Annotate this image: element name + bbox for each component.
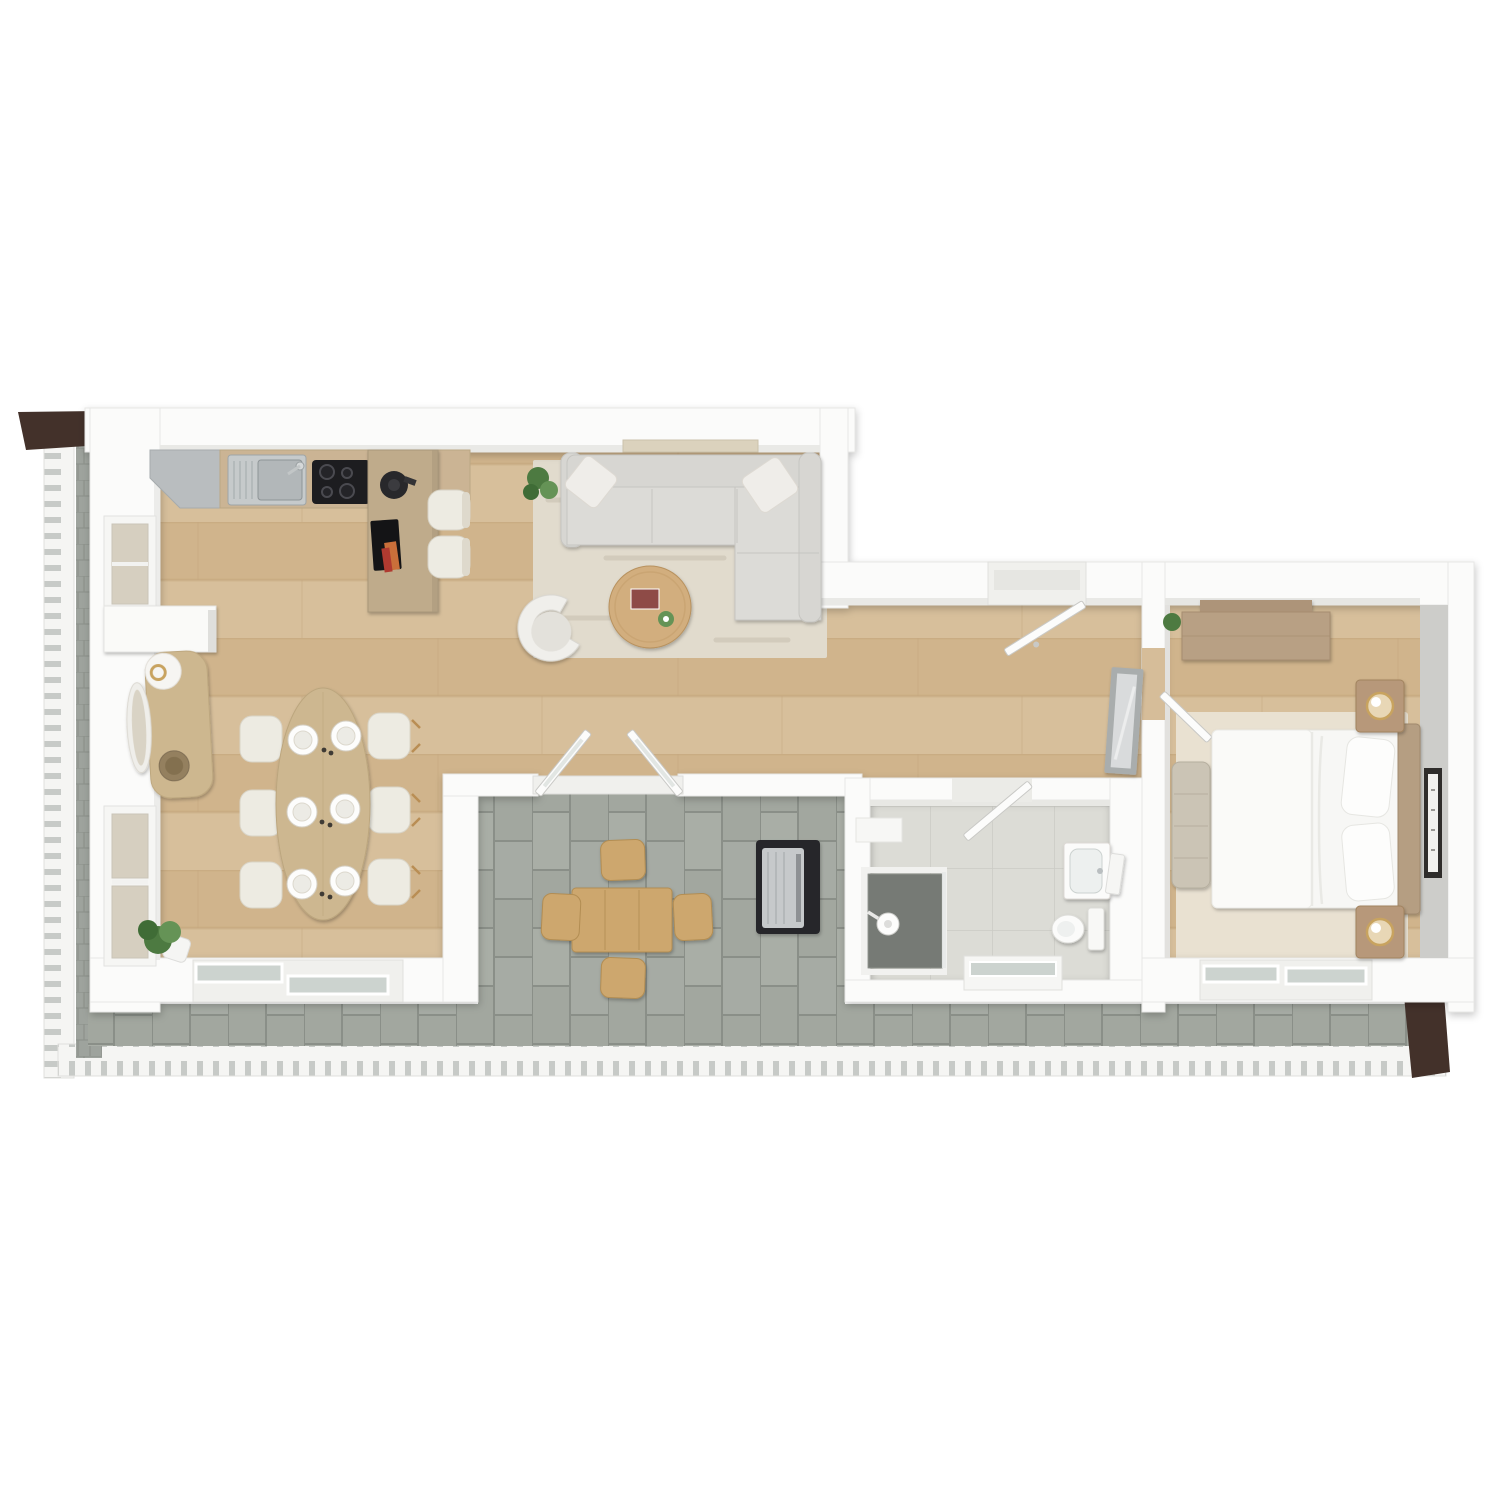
bedroom-doorway <box>1142 648 1165 720</box>
floor-plan-svg <box>0 0 1500 1500</box>
outdoor-chair-left <box>541 893 581 941</box>
dining-chair <box>368 787 410 833</box>
entry-threshold <box>994 570 1080 590</box>
privacy-panel <box>1404 994 1450 1078</box>
sliding-pane <box>1204 966 1278 982</box>
wall-living-terrace-right <box>678 774 862 796</box>
bathroom-window <box>964 956 1062 990</box>
nightstand-top <box>1356 680 1404 732</box>
outdoor-chair-bottom <box>600 957 645 999</box>
bedroom-plant <box>1163 613 1181 631</box>
wall-bedroom-left <box>1142 562 1165 1012</box>
window-left-upper <box>104 516 156 612</box>
burner <box>342 468 352 478</box>
wall-dining-terrace <box>443 775 478 1002</box>
island-edge-shade <box>432 450 438 612</box>
window-glass <box>970 962 1056 976</box>
dining-chair <box>368 713 410 759</box>
outdoor-table <box>572 888 672 952</box>
toilet-seat <box>1057 921 1075 937</box>
picture-mat <box>1428 774 1438 872</box>
bar-stool-back <box>462 492 470 528</box>
bathroom-ledge <box>856 818 902 842</box>
bed <box>1212 724 1420 914</box>
bedside-lamp <box>1367 919 1393 945</box>
burner <box>340 484 354 498</box>
dining-sliding-door <box>193 960 403 1002</box>
shower-glass <box>942 872 946 968</box>
bedside-lamp <box>1367 693 1393 719</box>
dining-chair <box>368 859 410 905</box>
bbq-grill <box>756 840 820 934</box>
coffee-table <box>609 566 691 648</box>
sliding-pane <box>288 976 388 994</box>
wall-face-corridor <box>820 598 1142 605</box>
bench <box>1172 762 1210 888</box>
dresser <box>1182 600 1330 660</box>
sliding-pane <box>196 964 282 982</box>
sliding-pane <box>1286 968 1366 984</box>
bbq-handle <box>796 854 801 922</box>
vanity-faucet <box>1097 868 1103 874</box>
outdoor-chair-right <box>673 893 713 941</box>
wall-living-terrace-left <box>443 774 538 796</box>
railing-left <box>44 438 74 1078</box>
dining-chair <box>240 716 282 762</box>
book <box>631 589 659 609</box>
shower <box>864 870 946 972</box>
railing-bottom <box>58 1044 1446 1076</box>
nightstand-bottom <box>1356 906 1404 958</box>
kitchen-sink <box>228 455 306 505</box>
duvet <box>1212 730 1312 908</box>
wall-cabinet-block <box>104 606 216 652</box>
headboard <box>1398 724 1420 914</box>
table-vase <box>663 616 669 622</box>
wall-right <box>1448 562 1474 1012</box>
sink-basin <box>258 460 302 500</box>
burner <box>322 487 332 497</box>
floor-plan-canvas <box>0 0 1500 1500</box>
cooktop <box>312 460 370 504</box>
window-glass <box>112 814 148 878</box>
wall-face-bedroom-left <box>1165 605 1170 958</box>
bar-stool-back <box>462 538 470 576</box>
wall-shelf <box>623 440 758 452</box>
dining-table-set <box>240 688 420 920</box>
wall-picture <box>1424 768 1442 878</box>
outdoor-chair-top <box>600 839 645 881</box>
island-tray <box>370 519 401 572</box>
pillow <box>1341 822 1395 902</box>
bedroom-sliding-door <box>1200 960 1372 1000</box>
dining-chair <box>240 862 282 908</box>
toilet-tank <box>1088 908 1104 950</box>
pillow <box>1340 736 1396 819</box>
burner <box>320 465 334 479</box>
sofa-armrest-right <box>799 453 821 622</box>
